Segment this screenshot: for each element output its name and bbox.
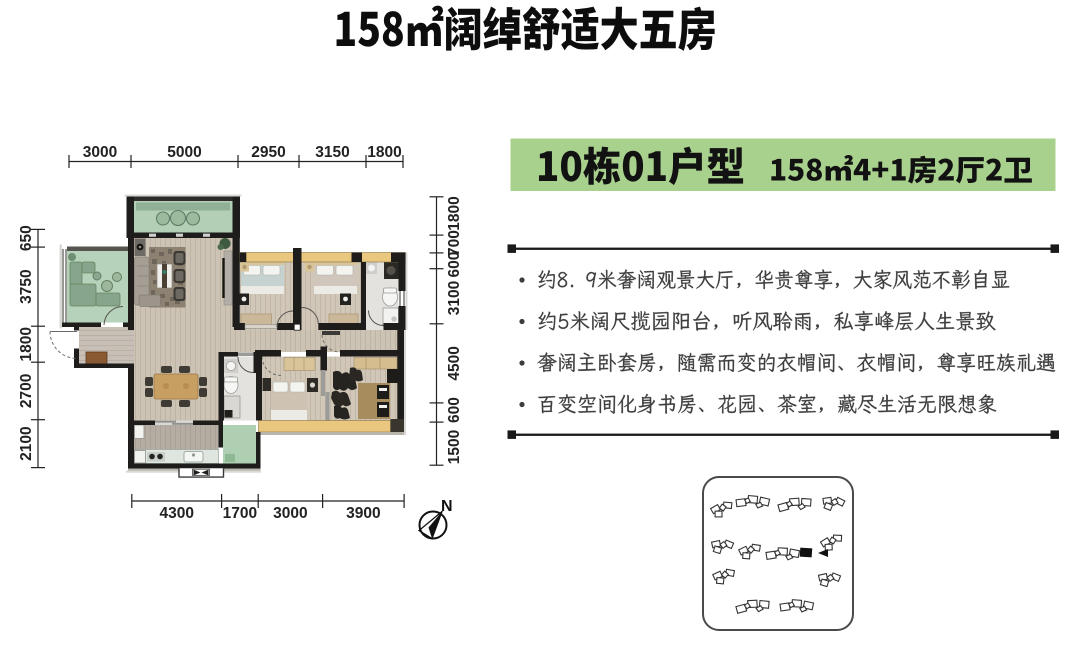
svg-text:1800: 1800 [367,144,401,161]
svg-text:3750: 3750 [18,269,35,303]
svg-text:2100: 2100 [18,426,35,460]
svg-text:N: N [441,498,453,515]
svg-text:600: 600 [446,397,463,423]
svg-text:4500: 4500 [446,346,463,380]
svg-text:2700: 2700 [18,374,35,408]
svg-text:1800: 1800 [446,196,463,230]
svg-text:3000: 3000 [83,144,117,161]
svg-text:3900: 3900 [346,505,380,522]
svg-text:3000: 3000 [273,505,307,522]
svg-text:600: 600 [446,252,463,278]
svg-text:1700: 1700 [223,505,257,522]
svg-text:1800: 1800 [18,327,35,361]
svg-text:4300: 4300 [159,505,193,522]
svg-text:1500: 1500 [446,430,463,464]
svg-text:3150: 3150 [315,144,349,161]
svg-text:2950: 2950 [251,144,285,161]
svg-text:5000: 5000 [167,144,201,161]
svg-text:3100: 3100 [446,281,463,315]
svg-text:650: 650 [18,225,35,251]
